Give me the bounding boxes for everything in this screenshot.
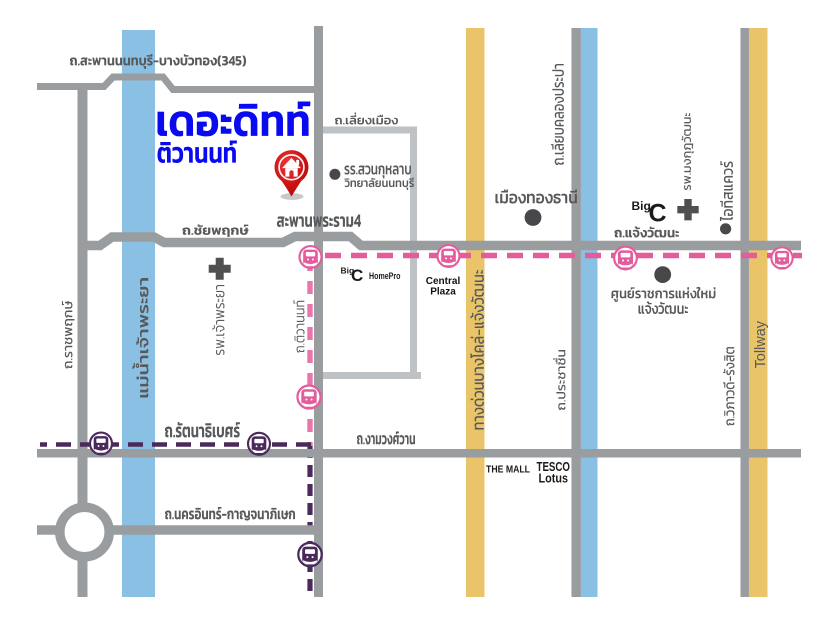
svg-text:Central: Central	[426, 276, 461, 287]
svg-text:THE MALL: THE MALL	[486, 465, 530, 476]
svg-text:Plaza: Plaza	[430, 287, 456, 298]
svg-text:Tollway: Tollway	[753, 320, 769, 368]
svg-text:C: C	[649, 200, 667, 228]
svg-text:Lotus: Lotus	[539, 471, 569, 486]
svg-text:C: C	[351, 266, 363, 285]
svg-text:HomePro: HomePro	[369, 271, 401, 281]
